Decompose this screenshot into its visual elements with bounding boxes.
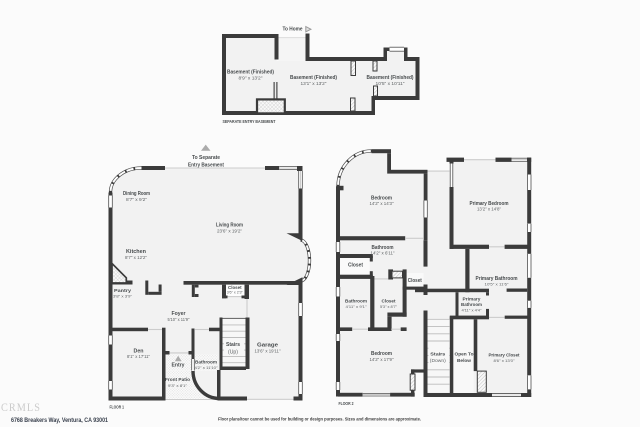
svg-text:Floor plans/tour cannot be use: Floor plans/tour cannot be used for buil…: [218, 417, 421, 422]
svg-text:8'6" x 13'0": 8'6" x 13'0": [494, 358, 516, 363]
svg-text:10'5" x 10'11": 10'5" x 10'11": [376, 81, 405, 86]
svg-text:Closet: Closet: [348, 263, 363, 269]
svg-text:5'3" x 8'7": 5'3" x 8'7": [380, 304, 398, 309]
svg-text:14'2" x 17'9": 14'2" x 17'9": [370, 357, 395, 362]
svg-text:6768 Breakers Way, Ventura, CA: 6768 Breakers Way, Ventura, CA 93001: [11, 417, 108, 424]
svg-text:4'11" x 4'4": 4'11" x 4'4": [462, 307, 483, 312]
svg-text:FLOOR 1: FLOOR 1: [110, 405, 125, 410]
svg-text:Stairs: Stairs: [226, 342, 240, 348]
svg-text:10'5" x 11'6": 10'5" x 11'6": [485, 282, 510, 287]
svg-text:Closet: Closet: [408, 278, 422, 284]
svg-text:8'9" x 13'2": 8'9" x 13'2": [239, 75, 263, 80]
svg-text:8'7" x 12'2": 8'7" x 12'2": [125, 255, 148, 260]
svg-text:FLOOR 2: FLOOR 2: [339, 401, 354, 406]
svg-text:Stairs: Stairs: [430, 351, 445, 357]
svg-text:Primary: Primary: [463, 296, 481, 302]
svg-text:3'6" x 2'3": 3'6" x 2'3": [227, 290, 244, 295]
svg-text:13'6" x 19'11": 13'6" x 19'11": [255, 348, 282, 353]
svg-text:(Down): (Down): [430, 358, 446, 364]
svg-text:13'2" x 14'8": 13'2" x 14'8": [477, 207, 502, 212]
svg-text:14'2" x 6'11": 14'2" x 6'11": [371, 250, 396, 255]
svg-text:Below: Below: [457, 358, 471, 364]
svg-text:To Home: To Home: [283, 27, 303, 33]
svg-text:3'8" x 3'9": 3'8" x 3'9": [113, 294, 133, 299]
svg-text:4'11" x 9'1": 4'11" x 9'1": [346, 304, 368, 309]
svg-text:Entry: Entry: [172, 362, 185, 368]
svg-text:To Separate: To Separate: [192, 155, 220, 161]
svg-text:Open To: Open To: [455, 351, 474, 357]
svg-text:5'10" x 11'9": 5'10" x 11'9": [168, 317, 190, 322]
svg-text:8'7" x 9'2": 8'7" x 9'2": [126, 197, 148, 202]
svg-text:Living Room: Living Room: [216, 223, 243, 229]
svg-text:9'3" x 8'1": 9'3" x 8'1": [168, 383, 188, 388]
svg-text:13'1" x 13'2": 13'1" x 13'2": [301, 81, 327, 86]
svg-text:CRMLS: CRMLS: [1, 402, 41, 414]
svg-text:23'6" x 19'2": 23'6" x 19'2": [217, 229, 242, 234]
svg-text:SEPARATE ENTRY BASEMENT: SEPARATE ENTRY BASEMENT: [223, 119, 276, 124]
svg-text:(Up): (Up): [228, 350, 238, 356]
svg-text:14'2" x 14'3": 14'2" x 14'3": [370, 201, 395, 206]
svg-text:Entry Basement: Entry Basement: [188, 163, 224, 169]
svg-text:4'2" x 11'10": 4'2" x 11'10": [195, 365, 219, 370]
svg-text:8'1" x 17'11": 8'1" x 17'11": [127, 354, 151, 359]
